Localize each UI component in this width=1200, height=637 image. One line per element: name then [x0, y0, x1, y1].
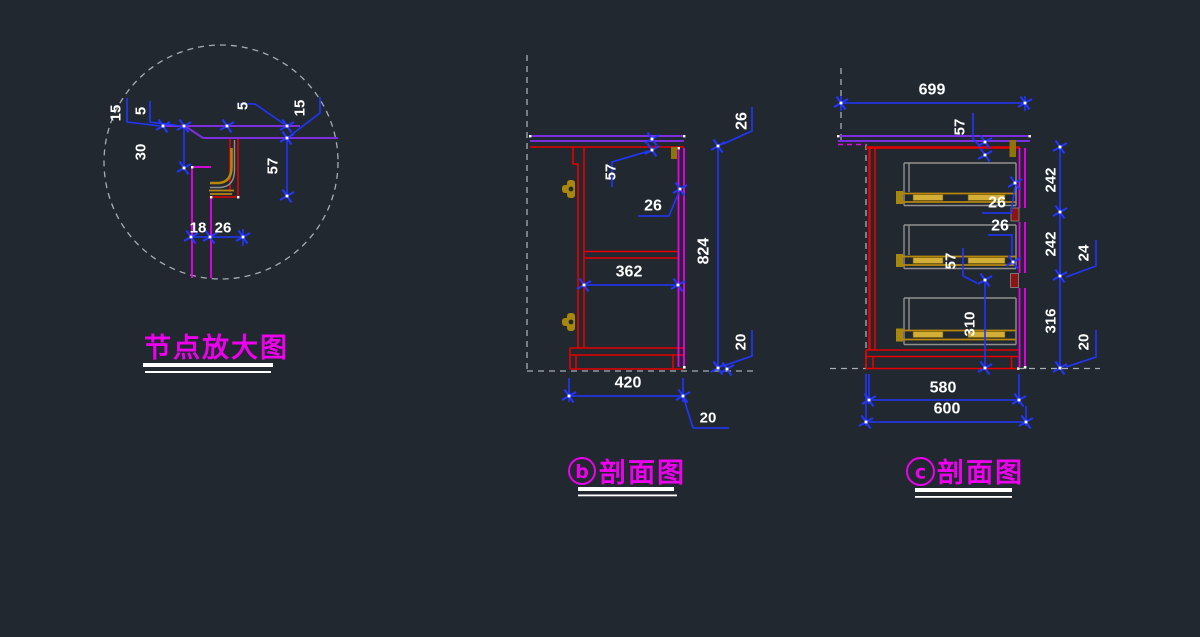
dim-15-right: 15 — [292, 100, 309, 117]
dim-242-b: 242 — [1043, 231, 1060, 256]
dim-20-bottom-b: 20 — [700, 410, 717, 427]
section-b-countertop — [529, 135, 685, 147]
drawer-box-3 — [896, 298, 1016, 345]
dim-20-right-b: 20 — [733, 334, 750, 351]
detail-label: 节点放大图 — [143, 332, 289, 373]
detail-title: 节点放大图 — [144, 332, 289, 364]
dim-24: 24 — [1076, 244, 1093, 261]
section-c-letter: c — [915, 462, 926, 484]
dim-5-top: 5 — [235, 102, 252, 110]
section-c-title: 剖面图 — [937, 457, 1024, 489]
dim-57-top-c: 57 — [952, 119, 969, 136]
front-gap-connector — [1011, 274, 1019, 288]
section-c-view: 699 57 26 26 242 242 24 57 310 316 20 58… — [830, 68, 1100, 498]
dim-310: 310 — [962, 311, 979, 336]
section-b-label: b 剖面图 — [569, 457, 686, 496]
section-b-letter: b — [575, 461, 589, 483]
section-b-carcass — [570, 147, 685, 369]
dim-580: 580 — [930, 380, 957, 397]
section-c-dimensions: 699 57 26 26 242 242 24 57 310 316 20 58… — [834, 82, 1096, 429]
drawing-canvas[interactable]: 15 5 30 5 15 57 18 26 节点放大图 — [0, 0, 1200, 637]
dim-242-a: 242 — [1043, 167, 1060, 192]
dim-15-left: 15 — [108, 105, 125, 122]
detail-dimensions: 15 5 30 5 15 57 18 26 — [108, 97, 321, 246]
dim-26-drawer1: 26 — [988, 195, 1006, 212]
dim-824: 824 — [696, 238, 713, 265]
dim-57-mid-c: 57 — [943, 253, 960, 270]
dim-699: 699 — [919, 82, 946, 99]
dim-30: 30 — [133, 144, 150, 161]
section-b-dimensions: 57 26 26 824 362 420 20 20 — [562, 107, 752, 428]
dim-18: 18 — [190, 220, 207, 237]
detail-door-edge — [209, 139, 238, 197]
detail-boundary-circle — [104, 45, 338, 279]
dim-600: 600 — [934, 401, 961, 418]
section-c-label: c 剖面图 — [907, 457, 1024, 498]
dim-316: 316 — [1043, 308, 1060, 333]
dim-20-right-c: 20 — [1076, 334, 1093, 351]
detail-view: 15 5 30 5 15 57 18 26 节点放大图 — [104, 45, 338, 373]
dim-26-drawer2: 26 — [991, 218, 1009, 235]
dim-5-left: 5 — [133, 107, 150, 115]
hinge-icon — [562, 313, 575, 331]
dim-420: 420 — [615, 375, 642, 392]
hinge-icon — [562, 180, 575, 198]
section-b-view: 57 26 26 824 362 420 20 20 b 剖面图 — [527, 55, 757, 496]
dim-57-detail: 57 — [265, 158, 282, 175]
front-top-bracket — [1010, 140, 1017, 157]
door-top-bracket — [671, 147, 677, 159]
detail-counter-profile — [163, 126, 338, 138]
dim-26-top-b: 26 — [734, 112, 751, 130]
dim-26-detail: 26 — [215, 220, 232, 237]
dim-362: 362 — [616, 264, 643, 281]
section-b-reference-lines — [527, 55, 757, 372]
dim-26-gap-b: 26 — [644, 198, 662, 215]
section-b-title: 剖面图 — [599, 457, 686, 489]
dim-57-b: 57 — [603, 164, 620, 181]
